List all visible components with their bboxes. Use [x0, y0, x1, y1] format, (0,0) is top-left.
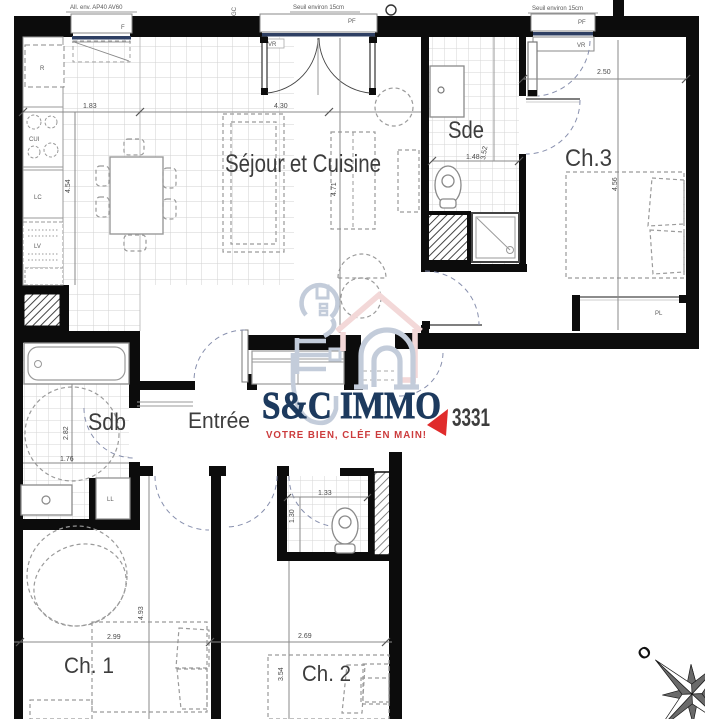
svg-text:VR: VR: [268, 42, 277, 48]
svg-text:LL: LL: [107, 497, 114, 503]
svg-text:3.54: 3.54: [278, 667, 285, 681]
svg-text:Ch.3: Ch.3: [565, 145, 612, 172]
svg-text:VOTRE BIEN, CLÉF EN MAIN!: VOTRE BIEN, CLÉF EN MAIN!: [266, 428, 427, 441]
svg-text:PL: PL: [655, 311, 663, 317]
svg-text:Ch. 1: Ch. 1: [64, 653, 114, 678]
svg-text:Entrée: Entrée: [188, 408, 250, 433]
svg-text:Ch. 2: Ch. 2: [302, 661, 351, 686]
svg-text:LV: LV: [34, 244, 41, 250]
svg-text:2.50: 2.50: [597, 69, 611, 76]
svg-text:1.33: 1.33: [318, 490, 332, 497]
svg-text:All. env. AP40 AV60: All. env. AP40 AV60: [70, 5, 123, 11]
svg-text:Seuil environ 15cm: Seuil environ 15cm: [293, 5, 344, 11]
svg-text:PF: PF: [578, 20, 586, 26]
svg-text:Séjour et Cuisine: Séjour et Cuisine: [225, 150, 381, 178]
svg-text:4.93: 4.93: [138, 606, 145, 620]
svg-text:R: R: [40, 66, 45, 72]
svg-text:1.48: 1.48: [466, 154, 480, 161]
svg-text:3331: 3331: [452, 404, 490, 432]
svg-text:2.99: 2.99: [107, 634, 121, 641]
svg-text:GC: GC: [232, 6, 238, 16]
svg-text:Sde: Sde: [448, 117, 484, 144]
svg-text:VR: VR: [577, 43, 586, 49]
svg-text:4.71: 4.71: [331, 182, 338, 196]
svg-text:4.56: 4.56: [612, 177, 619, 191]
svg-text:4.54: 4.54: [65, 179, 72, 193]
svg-text:LC: LC: [34, 195, 42, 201]
svg-text:Sdb: Sdb: [88, 409, 126, 436]
svg-text:4.30: 4.30: [274, 103, 288, 110]
svg-text:S&C IMMO: S&C IMMO: [262, 385, 441, 427]
svg-text:2.69: 2.69: [298, 633, 312, 640]
svg-text:Seuil environ 15cm: Seuil environ 15cm: [532, 6, 583, 12]
svg-text:2.82: 2.82: [63, 426, 70, 440]
svg-text:1.30: 1.30: [289, 509, 296, 523]
svg-text:PF: PF: [348, 19, 356, 25]
svg-text:F: F: [121, 25, 125, 31]
svg-text:1.83: 1.83: [83, 103, 97, 110]
svg-text:1.76: 1.76: [60, 456, 74, 463]
svg-text:CUI: CUI: [29, 137, 40, 143]
